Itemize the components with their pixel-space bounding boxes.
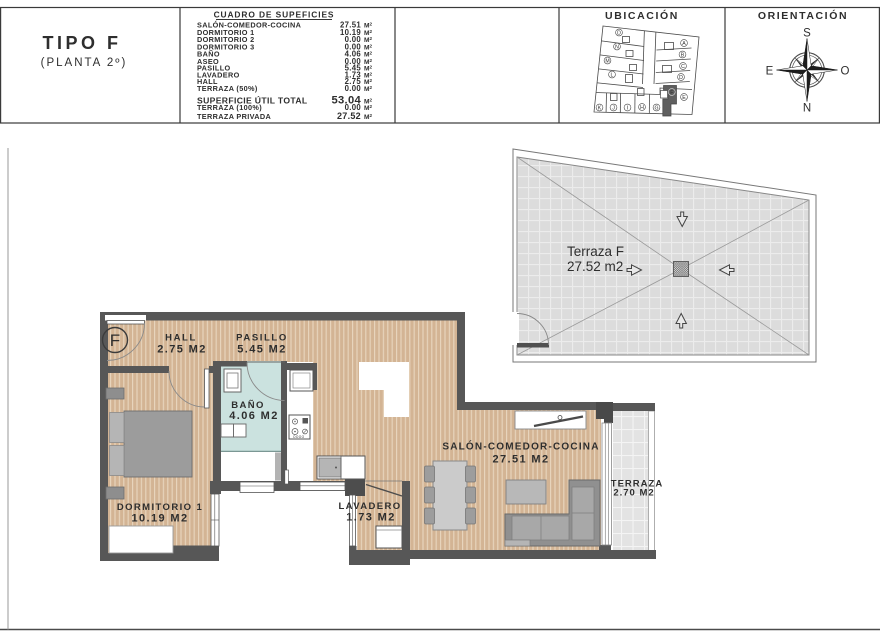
svg-text:M: M (605, 59, 609, 65)
svg-text:TERRAZA (100%): TERRAZA (100%) (197, 103, 262, 112)
svg-text:N: N (803, 103, 811, 115)
svg-text:TIPO F: TIPO F (43, 33, 122, 53)
svg-text:2.70 M2: 2.70 M2 (613, 488, 654, 499)
svg-text:PASILLO: PASILLO (236, 333, 288, 344)
svg-text:TERRAZA (50%): TERRAZA (50%) (197, 84, 258, 93)
svg-text:0.00: 0.00 (345, 84, 362, 93)
svg-text:K: K (598, 106, 602, 112)
svg-text:TERRAZA PRIVADA: TERRAZA PRIVADA (197, 112, 272, 121)
svg-text:5.45 M2: 5.45 M2 (237, 344, 287, 356)
svg-text:E: E (682, 95, 686, 101)
svg-text:C: C (681, 64, 685, 70)
svg-text:DORMITORIO 1: DORMITORIO 1 (117, 502, 203, 513)
svg-text:D: D (679, 75, 683, 81)
svg-text:I: I (627, 106, 628, 112)
svg-text:LAVADERO: LAVADERO (338, 501, 401, 512)
svg-text:(PLANTA 2º): (PLANTA 2º) (41, 57, 128, 69)
svg-text:O: O (841, 66, 850, 78)
svg-text:SALÓN-COMEDOR-COCINA: SALÓN-COMEDOR-COCINA (442, 440, 599, 453)
svg-text:F: F (110, 331, 120, 350)
svg-text:S: S (803, 28, 811, 40)
svg-text:A: A (682, 41, 686, 47)
svg-text:27.51 M2: 27.51 M2 (492, 454, 549, 466)
svg-text:ORIENTACIÓN: ORIENTACIÓN (758, 9, 848, 22)
svg-text:B: B (681, 53, 685, 59)
svg-text:E: E (766, 66, 774, 78)
svg-text:N: N (615, 45, 619, 51)
svg-text:2.75 M2: 2.75 M2 (157, 344, 207, 356)
svg-text:OOOO: OOOO (293, 435, 305, 439)
svg-text:CUADRO DE SUPEFICIES: CUADRO DE SUPEFICIES (214, 10, 335, 20)
svg-text:D: D (617, 31, 621, 37)
svg-text:10.19 M2: 10.19 M2 (131, 513, 188, 525)
svg-text:H: H (640, 105, 644, 111)
svg-text:J: J (612, 106, 615, 112)
svg-text:4.06 M2: 4.06 M2 (229, 410, 279, 422)
svg-text:Terraza F: Terraza F (567, 244, 624, 259)
svg-text:G: G (654, 106, 658, 112)
svg-text:1.73 M2: 1.73 M2 (346, 512, 396, 524)
svg-text:L: L (611, 73, 614, 79)
svg-text:HALL: HALL (165, 333, 197, 344)
svg-text:27.52 m2: 27.52 m2 (567, 259, 623, 274)
svg-text:27.52: 27.52 (337, 111, 361, 121)
svg-text:UBICACIÓN: UBICACIÓN (605, 9, 679, 22)
svg-text:F: F (670, 90, 673, 96)
